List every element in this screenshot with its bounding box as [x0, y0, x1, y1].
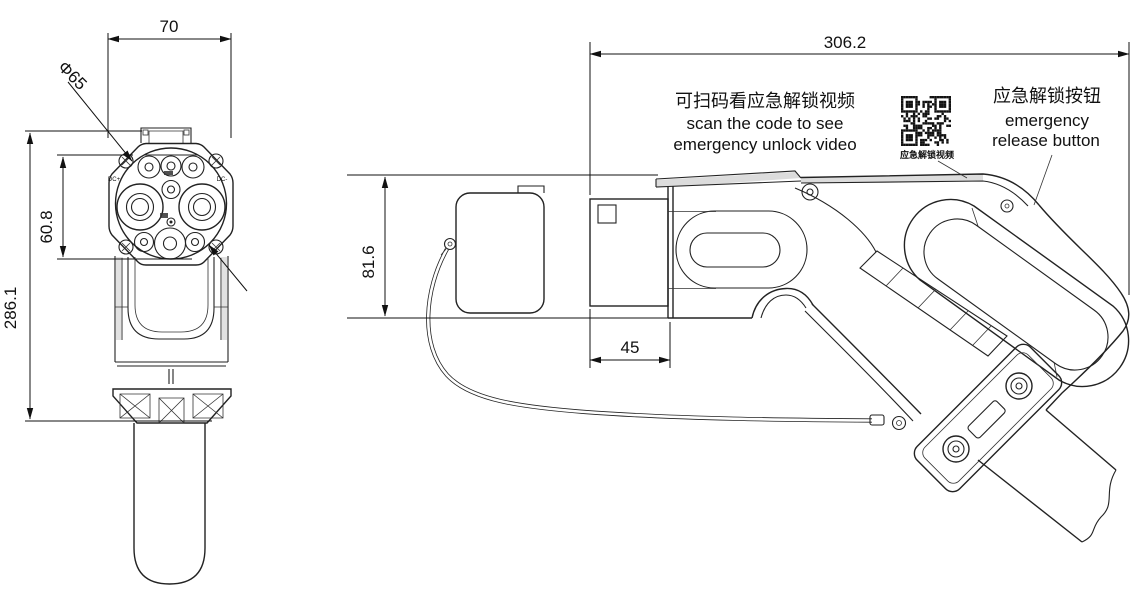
body-cutout-outer [676, 211, 807, 288]
handle-front [752, 288, 921, 421]
dim-insert-height-text: 60.8 [37, 210, 56, 243]
side-view-gun: 306.2 81.6 45 可扫码看应急解锁视频 scan the code t… [347, 33, 1129, 542]
body-cutout-inner [690, 233, 780, 267]
dim-width-text: 70 [160, 17, 179, 36]
cable-clamp-plate [870, 340, 1066, 496]
dust-cap [441, 186, 544, 313]
connector-body [113, 256, 231, 584]
cable-front-view [134, 423, 205, 584]
top-tab [141, 128, 191, 143]
dc-minus-pin [179, 184, 225, 230]
release-button-note: 应急解锁按钮 emergency release button [992, 86, 1101, 205]
dim-length-text: 306.2 [824, 33, 867, 52]
qr-code: 应急解锁视频 [900, 96, 967, 178]
gland-nut [113, 389, 231, 423]
nozzle [590, 199, 668, 306]
front-view-connector: DC+ DC- [1, 17, 247, 584]
dim-total-height-text: 286.1 [1, 287, 20, 330]
dim-diameter-text: Φ65 [54, 57, 90, 93]
dimension-total-height-286-1: 286.1 [1, 131, 212, 421]
ev-charging-connector-drawing: DC+ DC- [0, 0, 1147, 605]
button-note-en-1: emergency [1005, 111, 1090, 130]
scan-note-en-1: scan the code to see [687, 114, 844, 133]
dim-height-text: 81.6 [359, 245, 378, 278]
dc-plus-pin [117, 184, 163, 230]
qr-caption: 应急解锁视频 [900, 149, 954, 160]
button-note-zh: 应急解锁按钮 [993, 86, 1101, 106]
tether-cable [428, 249, 872, 421]
handle-grip-hole [904, 200, 1128, 387]
button-note-en-2: release button [992, 131, 1100, 150]
pin-label-dc-plus: DC+ [108, 177, 121, 183]
dim-nozzle-text: 45 [621, 338, 640, 357]
dimension-length-306-2: 306.2 [590, 33, 1129, 295]
grip-ribs [860, 251, 1007, 356]
scan-note-en-2: emergency unlock video [673, 135, 856, 154]
dimension-width-70: 70 [108, 17, 231, 138]
scan-note-zh: 可扫码看应急解锁视频 [675, 91, 855, 111]
pin-label-dc-minus: DC- [217, 177, 228, 183]
cable-side-view [978, 410, 1116, 542]
technical-drawing-page: DC+ DC- [0, 0, 1147, 605]
scan-note: 可扫码看应急解锁视频 scan the code to see emergenc… [673, 91, 856, 154]
button-leader-line [1034, 155, 1052, 205]
dimension-height-81-6: 81.6 [347, 175, 668, 318]
